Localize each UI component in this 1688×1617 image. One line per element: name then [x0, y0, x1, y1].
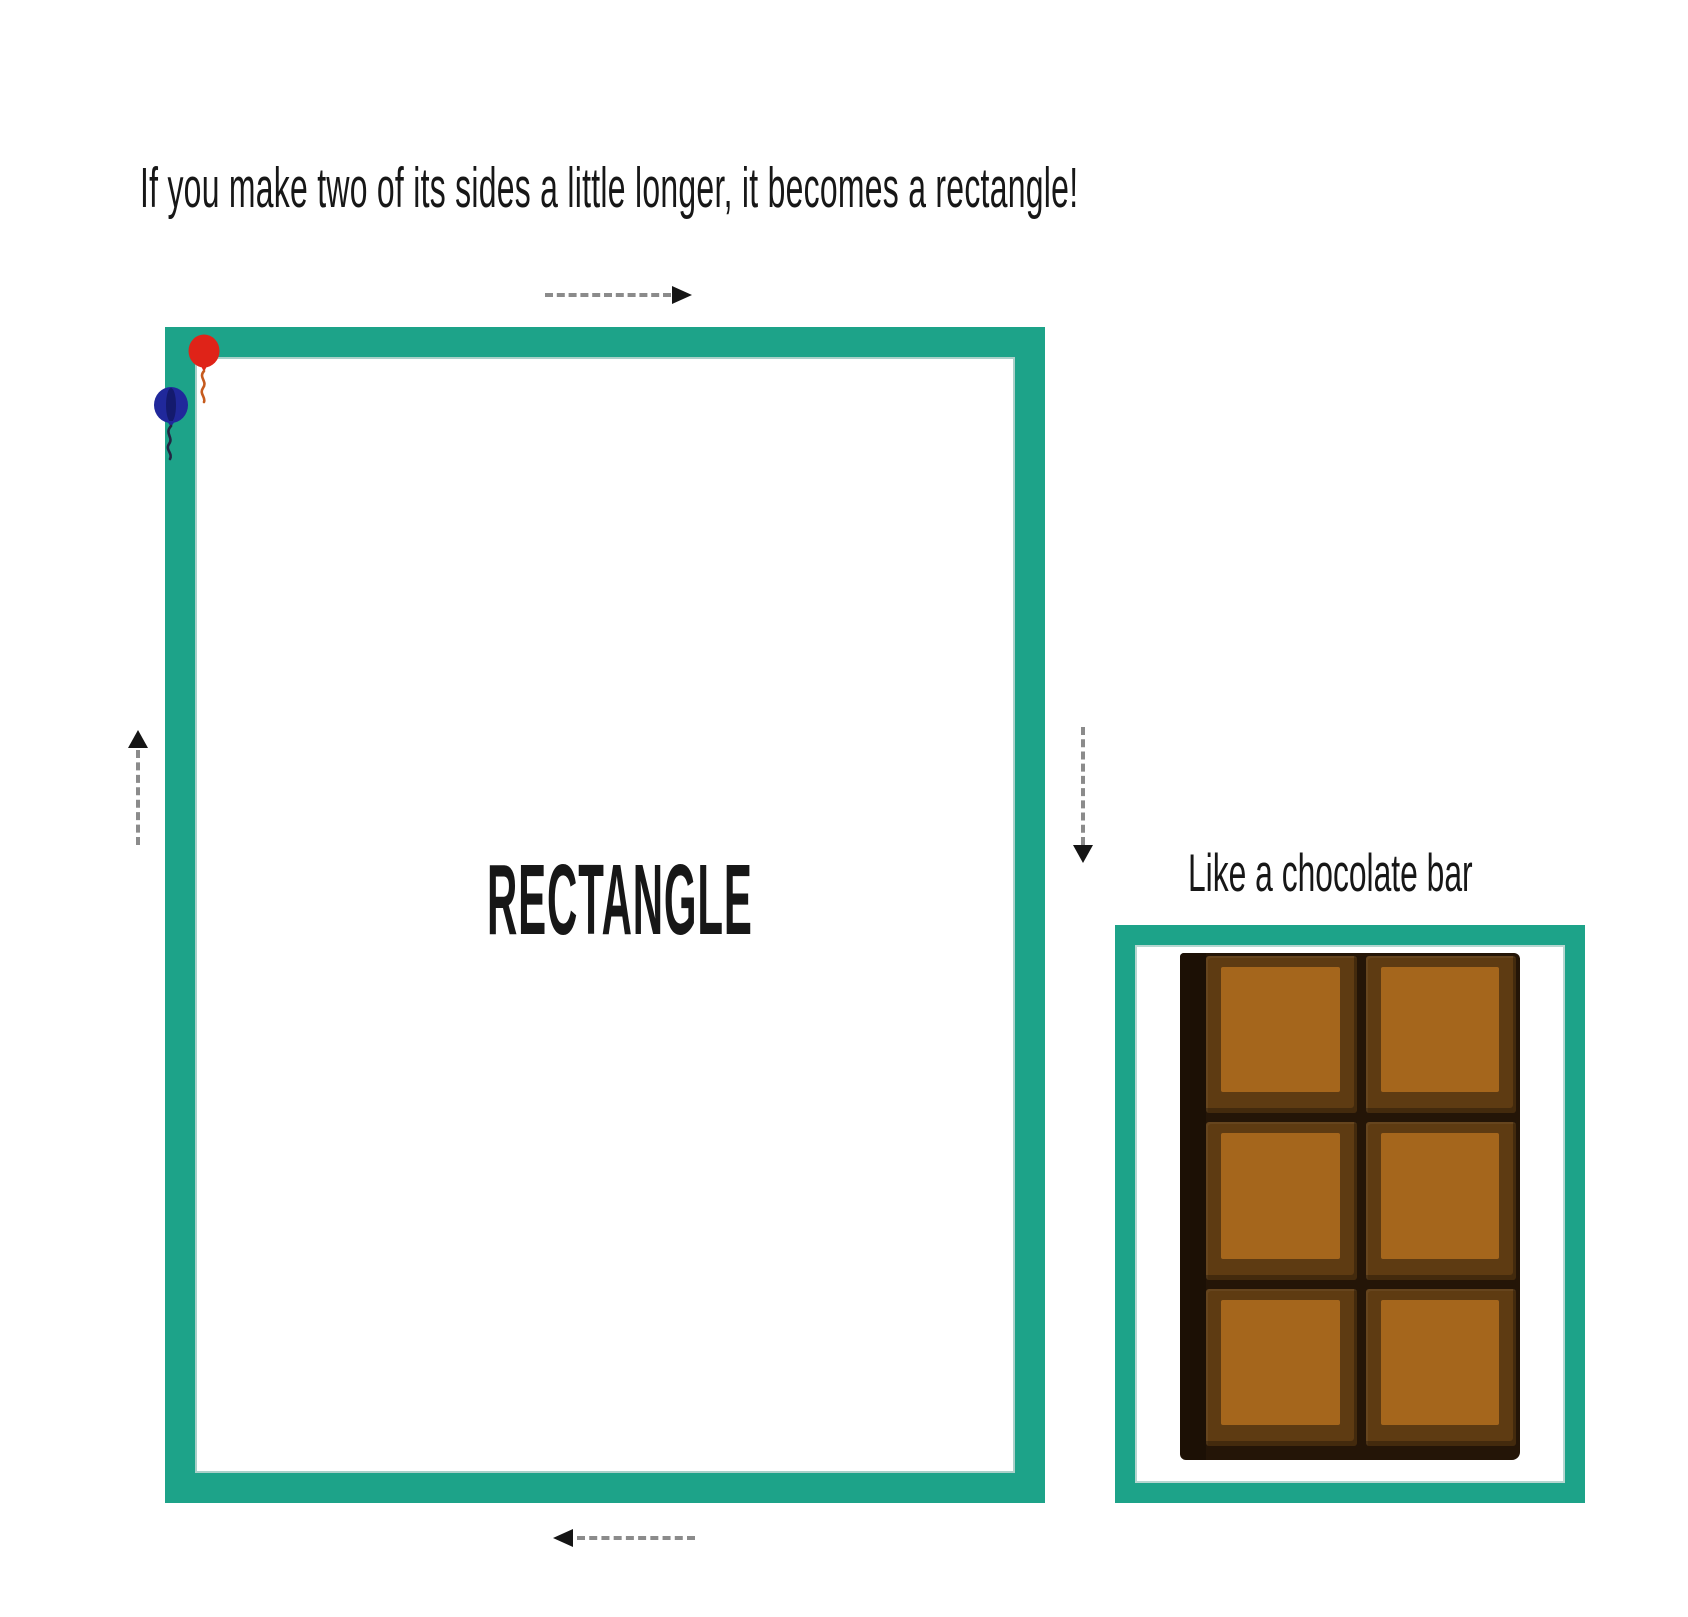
chocolate-segment — [1366, 1122, 1517, 1279]
arrow-top-dash-line — [545, 293, 671, 297]
chocolate-side-shadow — [1180, 953, 1206, 1460]
chocolate-caption: Like a chocolate bar — [1188, 847, 1473, 900]
arrow-bottom-dash-line — [577, 1536, 695, 1540]
arrow-up-icon — [128, 730, 148, 748]
chocolate-segment — [1366, 956, 1517, 1113]
chocolate-segment — [1206, 956, 1357, 1113]
rectangle-label: RECTANGLE — [487, 850, 753, 950]
book-page: If you make two of its sides a little lo… — [0, 0, 1688, 1617]
chocolate-segment — [1366, 1289, 1517, 1446]
chocolate-grid — [1206, 956, 1516, 1446]
arrow-left-icon — [553, 1529, 573, 1547]
arrow-down-icon — [1073, 845, 1093, 863]
page-title: If you make two of its sides a little lo… — [140, 160, 1078, 217]
chocolate-segment — [1206, 1122, 1357, 1279]
chocolate-bar — [1180, 953, 1520, 1460]
arrow-right-dash-line — [1081, 727, 1085, 845]
chocolate-segment — [1206, 1289, 1357, 1446]
arrow-right-icon — [672, 286, 692, 304]
arrow-left-dash-line — [136, 750, 140, 845]
blue-balloon-icon — [151, 386, 195, 462]
